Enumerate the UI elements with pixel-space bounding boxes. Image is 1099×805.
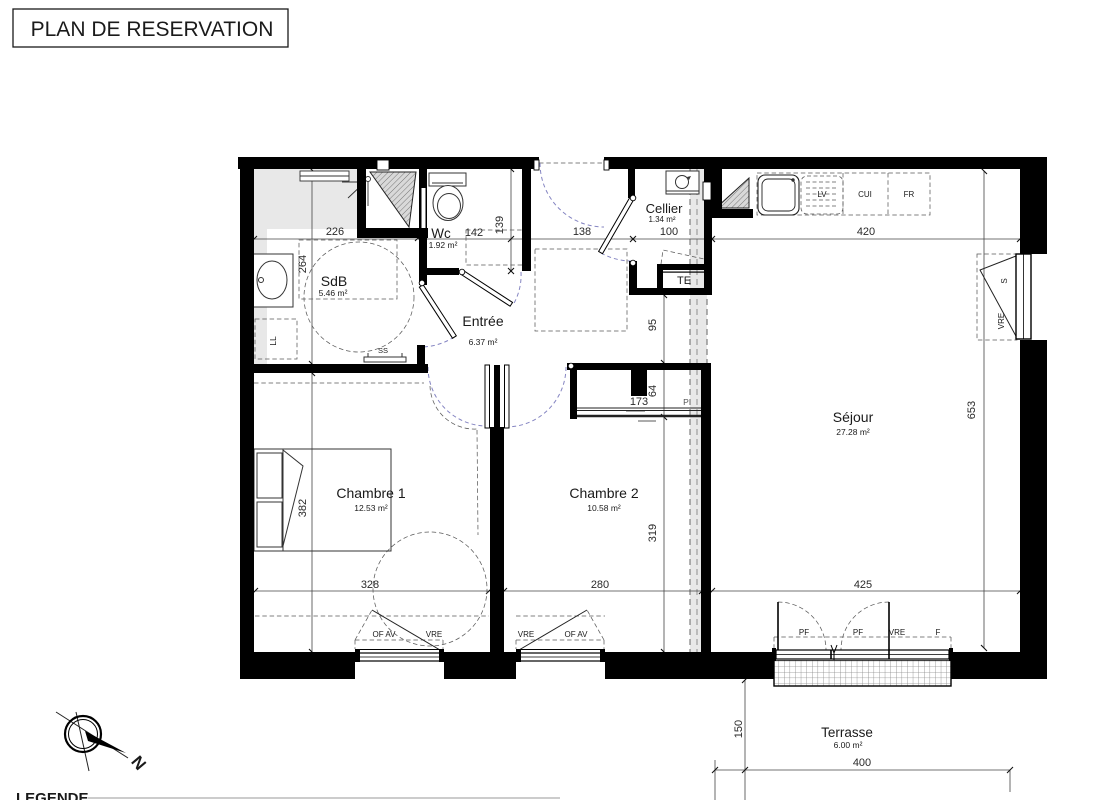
svg-text:Chambre 2: Chambre 2	[569, 485, 638, 501]
svg-text:LEGENDE: LEGENDE	[16, 790, 89, 800]
svg-text:95: 95	[647, 319, 659, 331]
svg-text:S: S	[1000, 278, 1009, 283]
svg-text:VRE: VRE	[889, 628, 905, 637]
svg-text:Cellier: Cellier	[646, 201, 684, 216]
svg-text:6.37 m²: 6.37 m²	[469, 337, 498, 347]
svg-text:100: 100	[660, 226, 678, 238]
svg-text:SS: SS	[378, 346, 388, 355]
svg-text:420: 420	[857, 226, 875, 238]
svg-text:400: 400	[853, 757, 871, 769]
svg-text:5.46 m²: 5.46 m²	[319, 288, 348, 298]
svg-text:27.28 m²: 27.28 m²	[836, 427, 870, 437]
svg-text:173: 173	[630, 396, 648, 408]
svg-text:319: 319	[647, 524, 659, 542]
svg-text:425: 425	[854, 579, 872, 591]
svg-text:12.53 m²: 12.53 m²	[354, 503, 388, 513]
svg-text:142: 142	[465, 227, 483, 239]
svg-text:1.34 m²: 1.34 m²	[648, 215, 675, 224]
svg-text:TE: TE	[677, 275, 691, 287]
svg-text:OF AV: OF AV	[565, 630, 589, 639]
svg-text:VRE: VRE	[997, 313, 1006, 329]
svg-text:Chambre 1: Chambre 1	[336, 485, 405, 501]
svg-text:PF: PF	[799, 628, 809, 637]
svg-text:SdB: SdB	[321, 273, 347, 289]
svg-text:6.00 m²: 6.00 m²	[834, 740, 863, 750]
svg-text:FR: FR	[904, 190, 915, 199]
svg-text:139: 139	[494, 216, 506, 234]
svg-text:VRE: VRE	[518, 630, 534, 639]
svg-text:1.92 m²: 1.92 m²	[429, 240, 458, 250]
svg-text:VRE: VRE	[426, 630, 442, 639]
svg-text:653: 653	[966, 401, 978, 419]
svg-text:P: P	[683, 397, 689, 407]
svg-text:328: 328	[361, 579, 379, 591]
svg-text:138: 138	[573, 226, 591, 238]
svg-text:150: 150	[733, 720, 745, 738]
svg-text:OF AV: OF AV	[373, 630, 397, 639]
svg-text:280: 280	[591, 579, 609, 591]
svg-text:CUI: CUI	[858, 190, 872, 199]
svg-text:Séjour: Séjour	[833, 409, 874, 425]
svg-text:226: 226	[326, 226, 344, 238]
svg-text:382: 382	[297, 499, 309, 517]
svg-text:PF: PF	[853, 628, 863, 637]
svg-text:LL: LL	[268, 336, 278, 346]
svg-text:Wc: Wc	[431, 226, 451, 241]
svg-text:Terrasse: Terrasse	[821, 725, 873, 740]
svg-text:Entrée: Entrée	[462, 313, 503, 329]
svg-text:64: 64	[647, 385, 659, 397]
svg-text:F: F	[936, 628, 941, 637]
svg-text:10.58 m²: 10.58 m²	[587, 503, 621, 513]
svg-text:LV: LV	[817, 190, 827, 199]
svg-text:PLAN DE RESERVATION: PLAN DE RESERVATION	[31, 18, 274, 41]
